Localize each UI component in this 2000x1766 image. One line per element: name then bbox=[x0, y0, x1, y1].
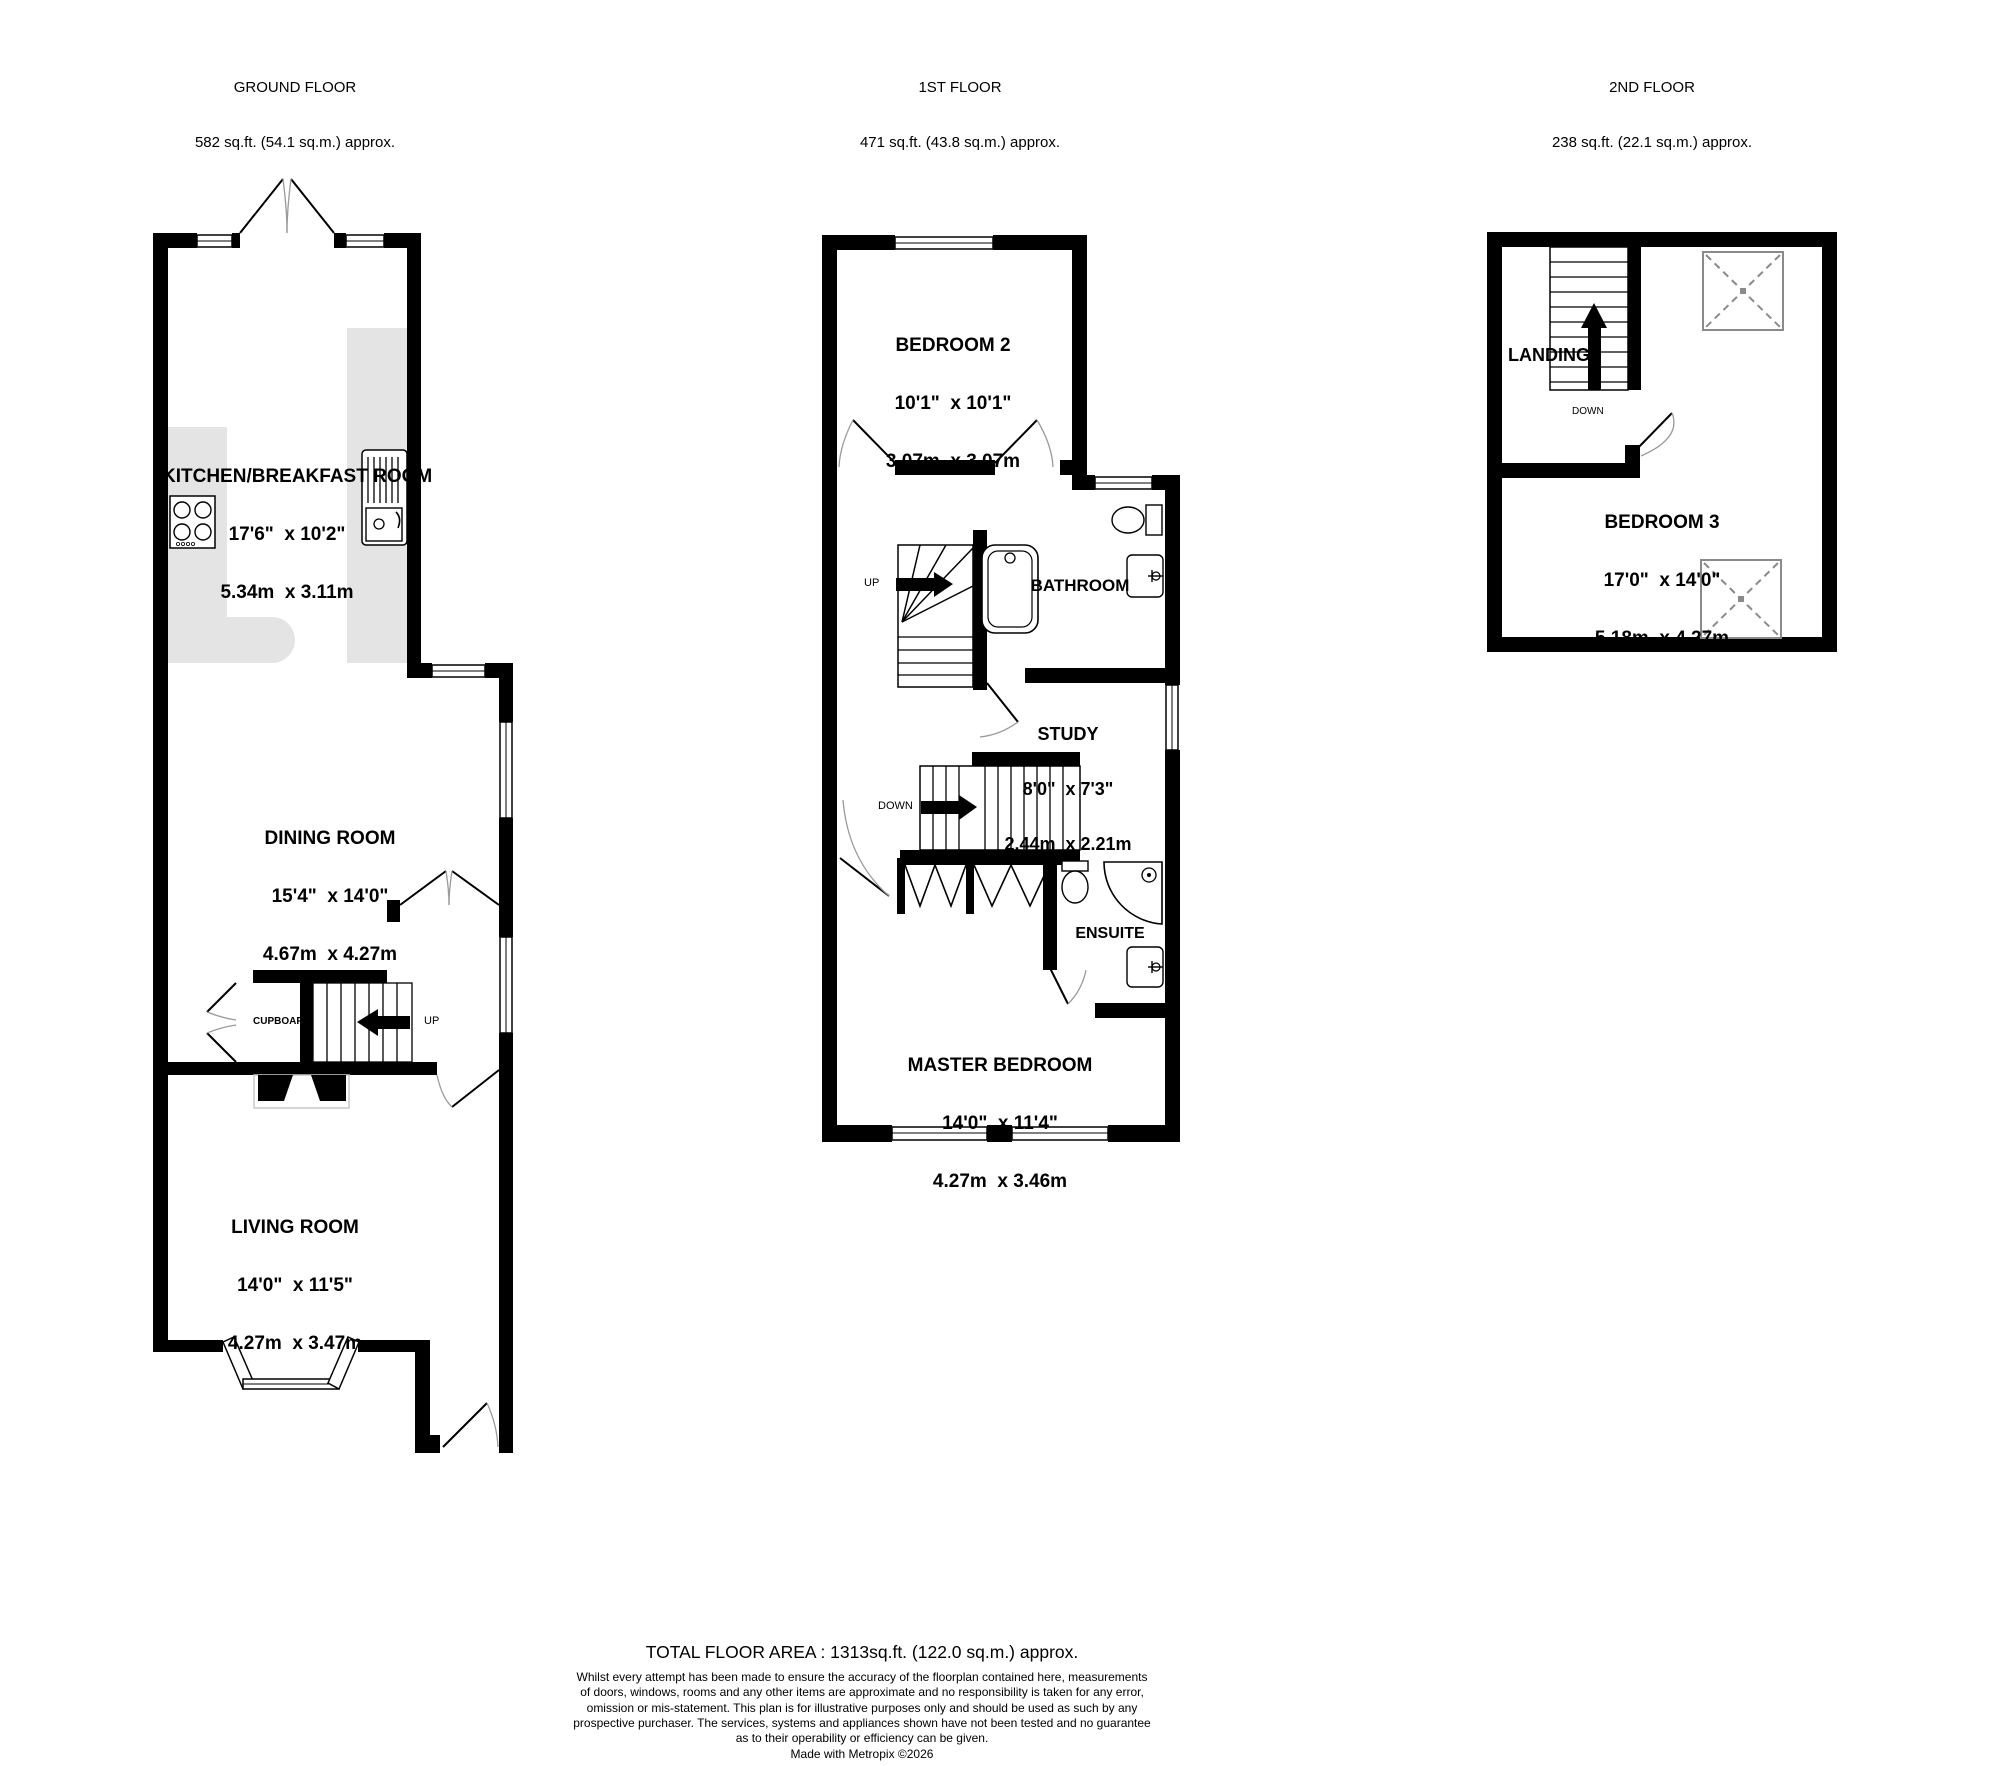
dining-imperial: 15'4" x 14'0" bbox=[230, 886, 430, 908]
ensuite-sink-icon bbox=[1127, 947, 1163, 987]
master-bedroom-door bbox=[840, 800, 889, 896]
first-floor-area: 471 sq.ft. (43.8 sq.m.) approx. bbox=[810, 133, 1110, 152]
wall bbox=[168, 1062, 437, 1075]
dining-label: DINING ROOM 15'4" x 14'0" 4.67m x 4.27m bbox=[230, 792, 430, 1002]
first-down-label: DOWN bbox=[878, 800, 913, 812]
living-imperial: 14'0" x 11'5" bbox=[195, 1275, 395, 1297]
ground-up-label: UP bbox=[424, 1015, 439, 1027]
toilet-icon bbox=[1112, 505, 1162, 535]
first-floor-title: 1ST FLOOR bbox=[810, 78, 1110, 97]
entrance-door bbox=[443, 1403, 498, 1447]
living-metric: 4.27m x 3.47m bbox=[195, 1333, 395, 1355]
floorplan-page: GROUND FLOOR 582 sq.ft. (54.1 sq.m.) app… bbox=[0, 0, 2000, 1766]
bedroom2-metric: 3.07m x 3.07m bbox=[853, 451, 1053, 473]
stairs-down bbox=[1550, 247, 1641, 390]
living-name: LIVING ROOM bbox=[195, 1217, 395, 1239]
living-label: LIVING ROOM 14'0" x 11'5" 4.27m x 3.47m bbox=[195, 1181, 395, 1391]
master-imperial: 14'0" x 11'4" bbox=[900, 1113, 1100, 1135]
ensuite-door bbox=[1050, 968, 1086, 1004]
master-name: MASTER BEDROOM bbox=[900, 1055, 1100, 1077]
second-down-label: DOWN bbox=[1572, 406, 1604, 417]
ground-floor-area: 582 sq.ft. (54.1 sq.m.) approx. bbox=[145, 133, 445, 152]
study-metric: 2.44m x 2.21m bbox=[988, 835, 1148, 854]
bathroom-label: BATHROOM bbox=[1020, 576, 1140, 596]
ground-floor-title: GROUND FLOOR bbox=[145, 78, 445, 97]
study-name: STUDY bbox=[988, 725, 1148, 744]
fireplace bbox=[254, 1075, 349, 1108]
bedroom3-imperial: 17'0" x 14'0" bbox=[1562, 570, 1762, 592]
second-floor-area: 238 sq.ft. (22.1 sq.m.) approx. bbox=[1497, 133, 1807, 152]
bedroom3-name: BEDROOM 3 bbox=[1562, 512, 1762, 534]
second-floor-title: 2ND FLOOR bbox=[1497, 78, 1807, 97]
living-room-door bbox=[437, 1070, 499, 1107]
master-bedroom-label: MASTER BEDROOM 14'0" x 11'4" 4.27m x 3.4… bbox=[900, 1019, 1100, 1229]
study-imperial: 8'0" x 7'3" bbox=[988, 780, 1148, 799]
bedroom3-metric: 5.18m x 4.27m bbox=[1562, 628, 1762, 650]
dining-metric: 4.67m x 4.27m bbox=[230, 944, 430, 966]
first-up-label: UP bbox=[864, 577, 879, 589]
study-label: STUDY 8'0" x 7'3" 2.44m x 2.21m bbox=[988, 689, 1148, 890]
landing-label: LANDING bbox=[1508, 345, 1668, 366]
bedroom2-label: BEDROOM 2 10'1" x 10'1" 3.07m x 3.07m bbox=[853, 299, 1053, 509]
bedroom3-label: BEDROOM 3 17'0" x 14'0" 5.18m x 4.27m bbox=[1562, 476, 1762, 686]
total-floor-area: TOTAL FLOOR AREA : 1313sq.ft. (122.0 sq.… bbox=[462, 1642, 1262, 1663]
second-floor-header: 2ND FLOOR 238 sq.ft. (22.1 sq.m.) approx… bbox=[1497, 42, 1807, 188]
dining-name: DINING ROOM bbox=[230, 828, 430, 850]
cupboard-label: CUPBOARD bbox=[253, 1016, 311, 1027]
master-metric: 4.27m x 3.46m bbox=[900, 1171, 1100, 1193]
disclaimer-text: Whilst every attempt has been made to en… bbox=[437, 1670, 1287, 1746]
kitchen-imperial: 17'6" x 10'2" bbox=[162, 524, 412, 546]
skylight-icon bbox=[1703, 252, 1783, 330]
kitchen-label: KITCHEN/BREAKFAST ROOM 17'6" x 10'2" 5.3… bbox=[162, 430, 412, 640]
credit-text: Made with Metropix ©2026 bbox=[462, 1747, 1262, 1761]
first-floor-header: 1ST FLOOR 471 sq.ft. (43.8 sq.m.) approx… bbox=[810, 42, 1110, 188]
bedroom2-name: BEDROOM 2 bbox=[853, 335, 1053, 357]
ensuite-label: ENSUITE bbox=[1060, 925, 1160, 943]
french-doors bbox=[240, 179, 334, 233]
kitchen-name: KITCHEN/BREAKFAST ROOM bbox=[162, 466, 412, 488]
stairs-up bbox=[896, 545, 973, 687]
kitchen-metric: 5.34m x 3.11m bbox=[162, 582, 412, 604]
bedroom2-imperial: 10'1" x 10'1" bbox=[853, 393, 1053, 415]
